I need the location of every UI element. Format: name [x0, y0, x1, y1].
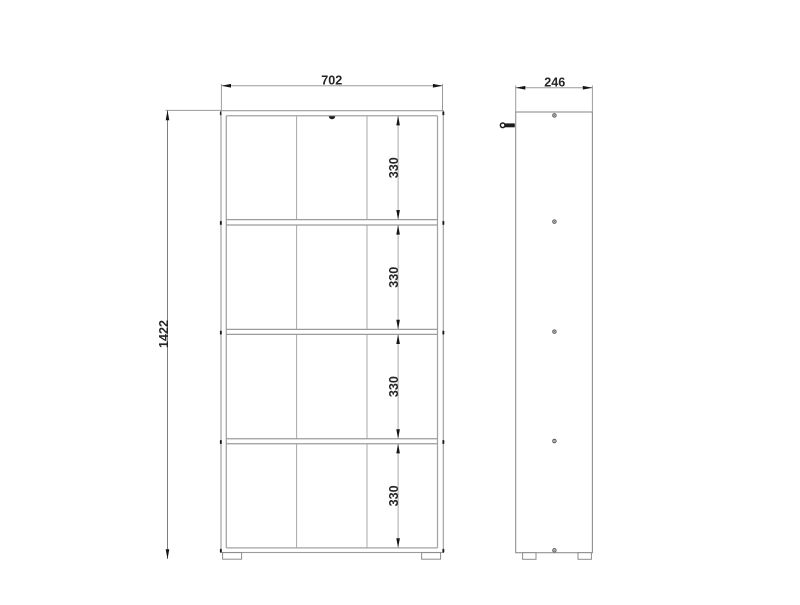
svg-text:330: 330 — [387, 267, 401, 288]
svg-text:330: 330 — [387, 485, 401, 506]
svg-text:330: 330 — [387, 157, 401, 178]
svg-text:330: 330 — [387, 376, 401, 397]
svg-text:702: 702 — [321, 74, 342, 88]
svg-text:1422: 1422 — [157, 320, 171, 348]
svg-text:246: 246 — [544, 75, 565, 89]
